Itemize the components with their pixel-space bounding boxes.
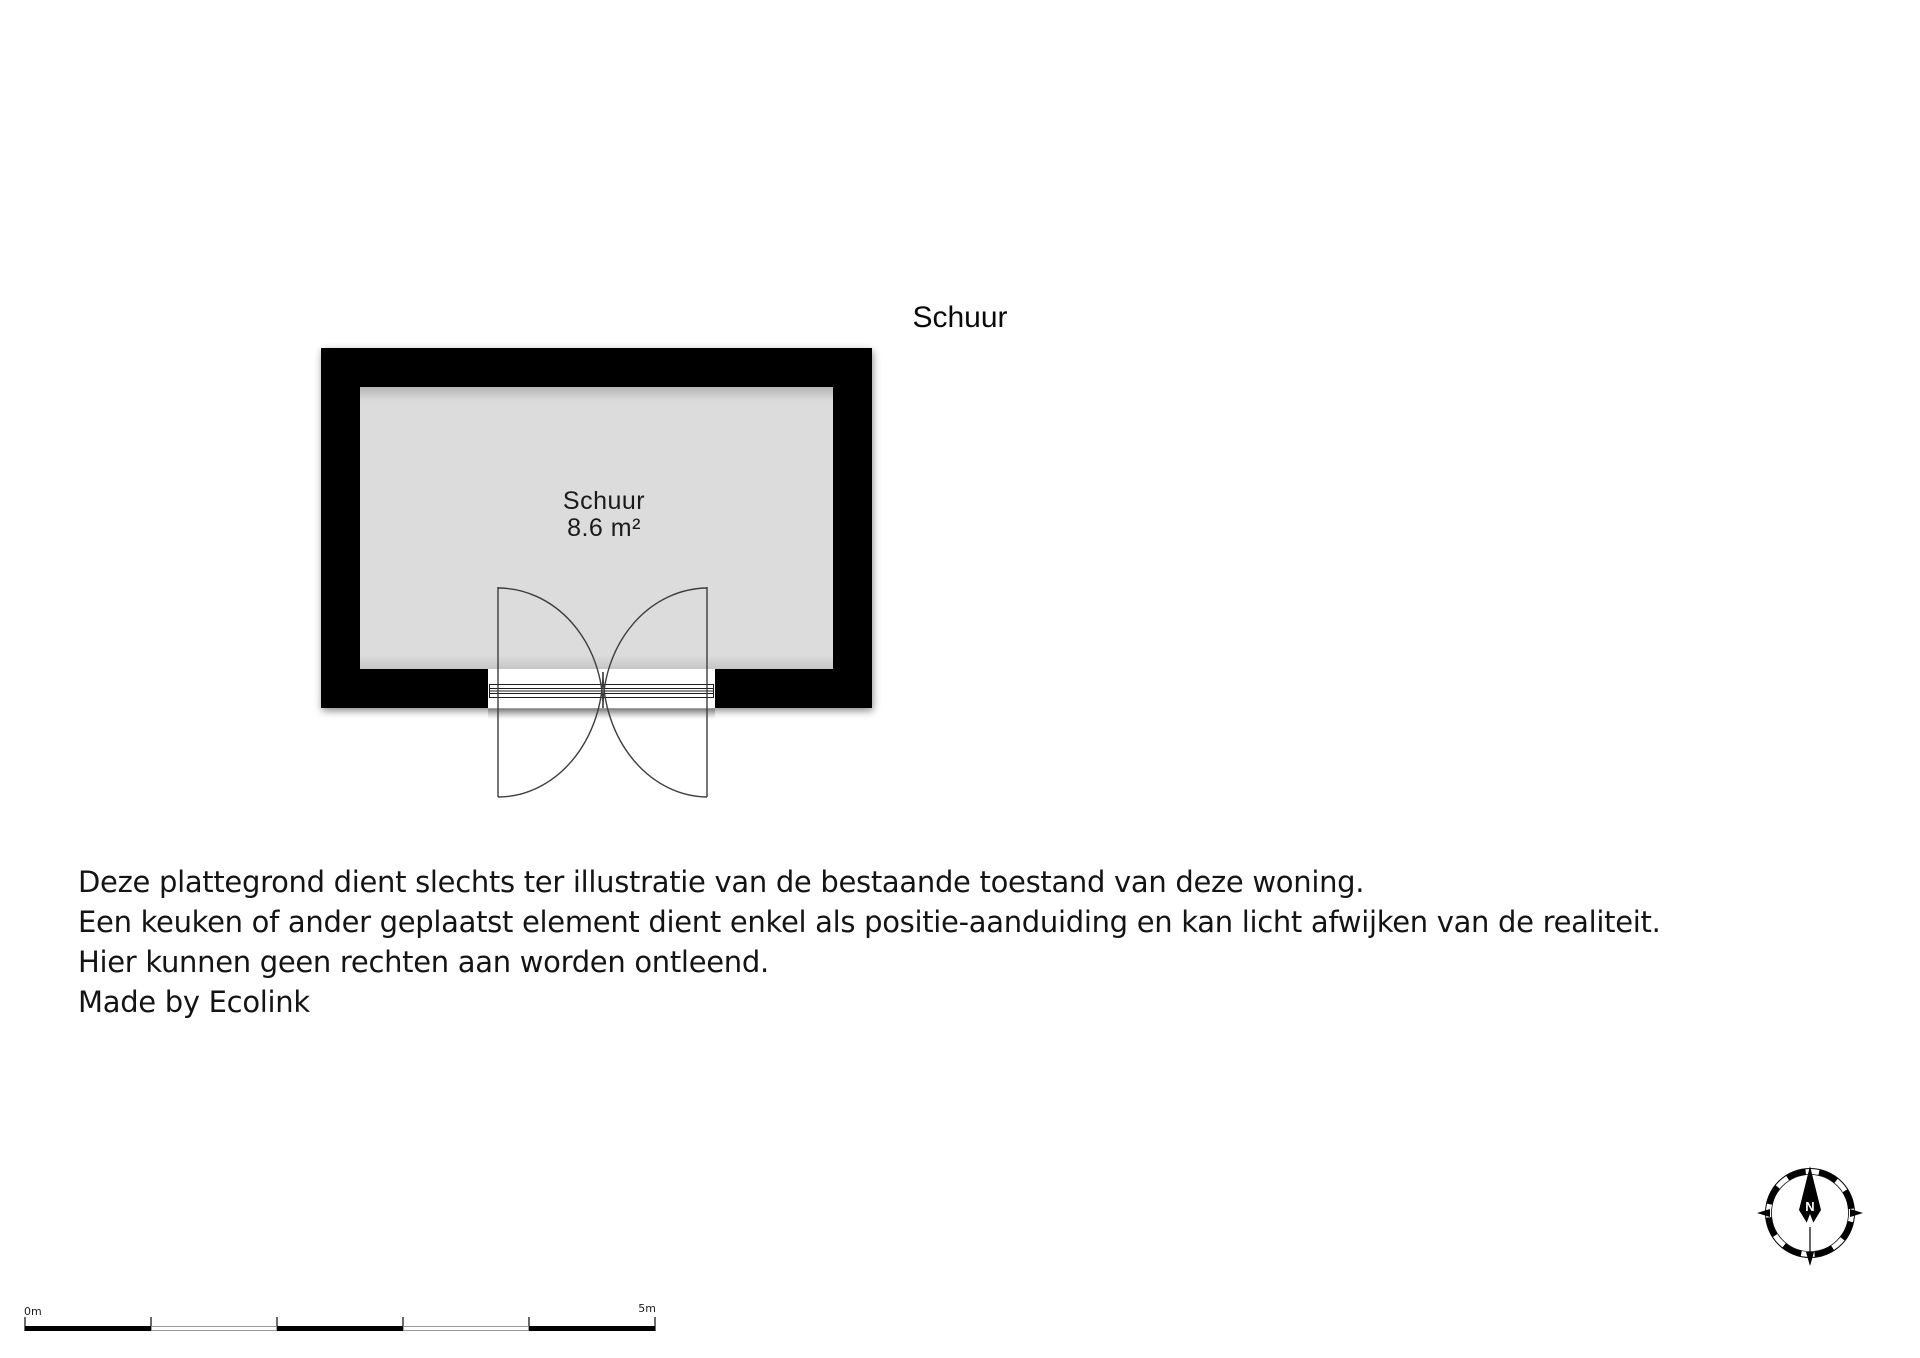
scale-segment-1-black [25,1326,151,1331]
scale-segment-5-black [529,1326,655,1331]
compass-west-spike [1757,1209,1770,1217]
scale-segment-2-open [152,1327,277,1331]
room-label: Schuur 8.6 m² [454,488,754,542]
scale-bar [18,1298,668,1343]
scale-end-label: 5m [630,1302,656,1315]
floorplan-page: Schuur [0,0,1920,1358]
floor-plan-drawing [280,330,920,830]
made-by-line: Made by Ecolink [78,982,1661,1022]
disclaimer-line-1: Deze plattegrond dient slechts ter illus… [78,862,1661,902]
door-opening-outer-shadow [488,708,715,719]
compass-south-spike [1806,1252,1814,1266]
scale-segment-4-open [404,1327,529,1331]
compass-east-spike [1850,1209,1863,1217]
compass-rose-icon: N [1745,1148,1875,1273]
disclaimer-line-3: Hier kunnen geen rechten aan worden ontl… [78,942,1661,982]
room-area: 8.6 m² [454,515,754,542]
scale-start-label: 0m [24,1305,42,1318]
room-name: Schuur [454,488,754,515]
disclaimer-text: Deze plattegrond dient slechts ter illus… [78,862,1661,1022]
floor-top-shadow [360,387,833,401]
scale-segment-3-black [277,1326,403,1331]
compass-north-label: N [1805,1199,1814,1214]
disclaimer-line-2: Een keuken of ander geplaatst element di… [78,902,1661,942]
